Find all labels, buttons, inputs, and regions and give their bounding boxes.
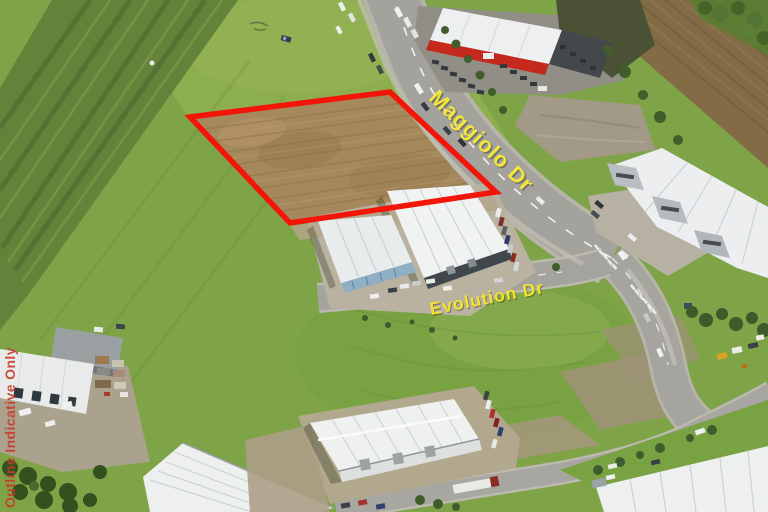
watermark-outline-indicative-only: Outline Indicative Only <box>2 347 18 508</box>
aerial-photo: Maggiolo Dr Maggiolo Dr Evolution Dr Evo… <box>0 0 768 512</box>
